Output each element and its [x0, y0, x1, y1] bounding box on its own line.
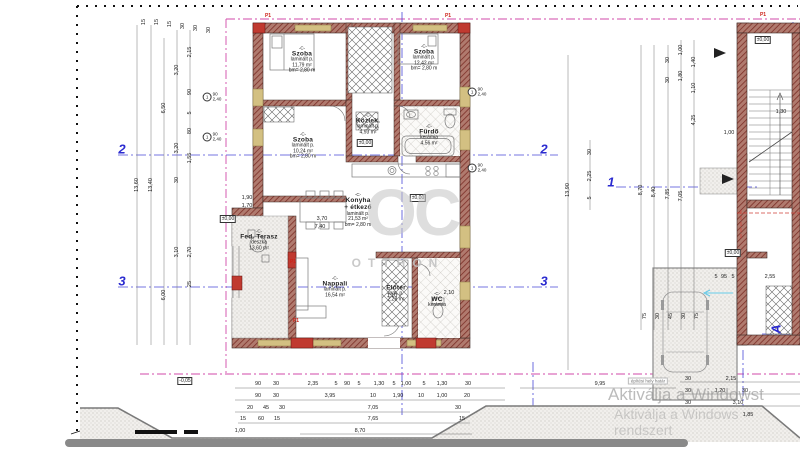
dimension-label: 7,05: [368, 405, 379, 411]
window-tag-number: 1: [203, 133, 212, 142]
room-sub: bm= 2,80 m: [289, 69, 316, 75]
dimension-label: 90: [255, 381, 261, 387]
dimension-label: 15: [240, 416, 246, 422]
dimension-label: 30: [655, 313, 661, 319]
room-label: -C-Előtérlam. p.2,28 m²: [386, 279, 406, 302]
dimension-label: 1,00: [401, 381, 412, 387]
dimension-label: 75: [642, 313, 648, 319]
dimension-label: 30: [279, 405, 285, 411]
window-tag: 1902,40: [468, 164, 487, 173]
dimension-label: 90: [255, 393, 261, 399]
room-sub: bm= 2,80 m: [411, 67, 438, 73]
dimension-label: 1,30: [437, 381, 448, 387]
section-marker-2: 2: [540, 142, 547, 157]
dimension-label: 60: [258, 416, 264, 422]
dimension-label: 90: [344, 381, 350, 387]
dimension-label: 25: [187, 281, 193, 287]
dimension-label: 5: [714, 274, 717, 280]
p1-label: P1: [293, 318, 299, 324]
dimension-label: 3,20: [174, 143, 180, 154]
dimension-label: 2,15: [187, 47, 193, 58]
room-label: -C-Közlek.laminált p.4,93 m²: [356, 112, 380, 135]
dimension-label: 1,00: [437, 393, 448, 399]
dimension-label: 13,60: [134, 178, 140, 192]
dimension-label: 2,15: [726, 376, 737, 382]
window-height: 2,40: [213, 137, 222, 142]
window-tag: 1902,40: [468, 88, 487, 97]
dimension-label: 30: [665, 57, 671, 63]
dimension-label: 1,10: [387, 293, 398, 299]
window-tag-number: 1: [203, 93, 212, 102]
agency-watermark-oc: OC: [366, 174, 459, 250]
dimension-label: 6,00: [161, 290, 167, 301]
dimension-label: 5: [422, 381, 425, 387]
dimension-label: 30: [455, 405, 461, 411]
window-tag: 1902,40: [203, 93, 222, 102]
dimension-label: 1,00: [724, 130, 735, 136]
dimension-label: 3,20: [174, 65, 180, 76]
room-sub: 13,60 m²: [240, 246, 277, 252]
dimension-label: 1,70: [242, 203, 253, 209]
dimension-label: 80: [187, 128, 193, 134]
dimension-label: 1,00: [678, 45, 684, 56]
p1-label: P1: [760, 12, 766, 18]
room-sub: kerámia: [428, 303, 446, 309]
window-height: 2,40: [478, 92, 487, 97]
dimension-label: 2,35: [308, 381, 319, 387]
dimension-label: 1,55: [187, 153, 193, 164]
section-marker-1: 1: [607, 175, 614, 190]
dimension-label: 15: [274, 416, 280, 422]
room-label: -C-Nappalilaminált p.16,54 m²: [323, 275, 348, 298]
dimension-label: 1,40: [691, 57, 697, 68]
dimension-label: 7,05: [678, 191, 684, 202]
section-marker-3: 3: [540, 274, 547, 289]
room-sub: 4,56 m²: [419, 141, 438, 147]
window-tag-number: 1: [468, 88, 477, 97]
window-height: 2,40: [478, 168, 487, 173]
room-sub: bm= 2,80 m: [290, 155, 317, 161]
dimension-label: 2,10: [444, 290, 455, 296]
level-marker: ±0,00: [725, 249, 741, 257]
level-marker: ±0,00: [220, 215, 236, 223]
room-sub: 4,93 m²: [356, 130, 380, 136]
agency-watermark-otthon: OTTHON: [352, 256, 445, 270]
dimension-label: 7,65: [368, 416, 379, 422]
dimension-label: 8,70: [355, 428, 366, 434]
dimension-label: 9,95: [595, 381, 606, 387]
dimension-label: 4,25: [691, 115, 697, 126]
dimension-label: 45: [668, 313, 674, 319]
level-marker: -0,05: [177, 377, 192, 385]
window-tag-number: 1: [468, 164, 477, 173]
dimension-label: 30: [665, 77, 671, 83]
room-label: -C-Szobalaminált p.12,42 m²bm= 2,80 m: [411, 43, 438, 72]
dimension-label: 15: [167, 21, 173, 27]
dimension-label: 7,85: [665, 189, 671, 200]
room-label: -C-Fürdőkerámia4,56 m²: [419, 123, 438, 146]
p1-label: P1: [445, 13, 451, 19]
dimension-label: 8,40: [651, 187, 657, 198]
section-marker-3: 3: [118, 274, 125, 289]
dimension-label: 5: [187, 111, 193, 114]
dimension-label: 15: [141, 19, 147, 25]
dimension-label: 3,10: [174, 247, 180, 258]
dimension-label: 1,90: [393, 393, 404, 399]
dimension-label: 10: [418, 393, 424, 399]
dimension-label: 2,25: [587, 171, 593, 182]
dimension-label: 6,50: [161, 103, 167, 114]
windows-activation-watermark-line1: Aktiválja a Windowst: [608, 385, 764, 405]
dimension-label: 5: [731, 274, 734, 280]
dimension-label: 13,40: [148, 178, 154, 192]
p1-label: P1: [290, 259, 296, 265]
dimension-label: 1,10: [691, 83, 697, 94]
window-tag: 1902,40: [203, 133, 222, 142]
windows-activation-watermark-line2: Aktiválja a Windows rendszert: [614, 406, 800, 438]
dimension-label: 1,30: [374, 381, 385, 387]
dimension-label: 45: [263, 405, 269, 411]
section-marker-2: 2: [118, 142, 125, 157]
floorplan-viewer: -C-Szobalaminált p.11,79 m²bm= 2,80 m-C-…: [0, 0, 800, 449]
dimension-label: 7,40: [315, 224, 326, 230]
dimension-label: 3,70: [317, 216, 328, 222]
dimension-label: 95: [721, 274, 727, 280]
level-marker: ±0,00: [755, 36, 771, 44]
level-marker: ±0,00: [357, 139, 373, 147]
dimension-label: 30: [180, 23, 186, 29]
dimension-label: 10: [370, 393, 376, 399]
dimension-label: 30: [587, 149, 593, 155]
section-marker-A: A: [769, 324, 784, 333]
dimension-label: 90: [187, 89, 193, 95]
dimension-label: 2,55: [765, 274, 776, 280]
dimension-label: 30: [206, 27, 212, 33]
room-label: -C-Szobalaminált p.10,24 m²bm= 2,80 m: [290, 131, 317, 160]
dimension-label: 30: [193, 25, 199, 31]
dimension-label: 30: [465, 381, 471, 387]
window-height: 2,40: [213, 97, 222, 102]
dimension-label: 20: [464, 393, 470, 399]
dimension-label: 8,70: [638, 185, 644, 196]
dimension-label: 13,90: [565, 183, 571, 197]
dimension-label: 30: [685, 376, 691, 382]
dimension-label: 75: [694, 313, 700, 319]
dimension-label: 1,30: [776, 109, 787, 115]
dimension-label: 5: [587, 196, 593, 199]
building-site-boundary-label: építési hely határ: [628, 378, 668, 385]
dimension-label: 2,70: [187, 247, 193, 258]
dimension-label: 30: [174, 177, 180, 183]
room-sub: 16,54 m²: [323, 293, 348, 299]
dimension-label: 5: [334, 381, 337, 387]
dimension-label: 30: [681, 313, 687, 319]
dimension-label: 1,00: [235, 428, 246, 434]
dimension-label: 3,95: [325, 393, 336, 399]
dimension-label: 30: [273, 381, 279, 387]
p1-label: P1: [265, 13, 271, 19]
horizontal-scrollbar-thumb[interactable]: [65, 439, 688, 447]
dimension-label: 5: [392, 381, 395, 387]
dimension-label: 30: [273, 393, 279, 399]
dimension-label: 1,80: [678, 71, 684, 82]
dimension-label: 1,90: [242, 195, 253, 201]
dimension-label: 15: [459, 416, 465, 422]
room-label: -C-Fed. Teraszdeszka13,60 m²: [240, 228, 277, 251]
room-label: -C-Szobalaminált p.11,79 m²bm= 2,80 m: [289, 45, 316, 74]
dimension-label: 20: [247, 405, 253, 411]
dimension-label: 5: [357, 381, 360, 387]
dimension-label: 15: [154, 19, 160, 25]
